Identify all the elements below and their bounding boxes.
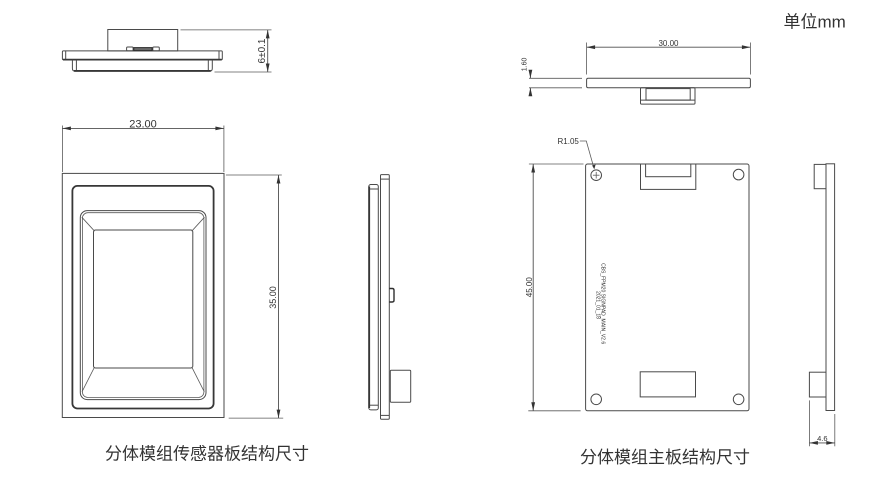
svg-text:23.00: 23.00 <box>129 118 157 130</box>
svg-text:1.60: 1.60 <box>521 57 528 71</box>
svg-text:单位mm: 单位mm <box>784 13 846 32</box>
svg-text:6±0.1: 6±0.1 <box>257 38 268 63</box>
svg-text:45.00: 45.00 <box>525 277 534 298</box>
svg-text:R1.05: R1.05 <box>558 137 580 146</box>
svg-text:分体模组传感器板结构尺寸: 分体模组传感器板结构尺寸 <box>105 445 309 464</box>
svg-text:30.00: 30.00 <box>658 39 679 48</box>
svg-text:4.6: 4.6 <box>817 434 827 443</box>
svg-text:分体模组主板结构尺寸: 分体模组主板结构尺寸 <box>580 448 750 467</box>
svg-text:35.00: 35.00 <box>268 286 278 309</box>
svg-text:2021_01_18: 2021_01_18 <box>595 291 601 319</box>
